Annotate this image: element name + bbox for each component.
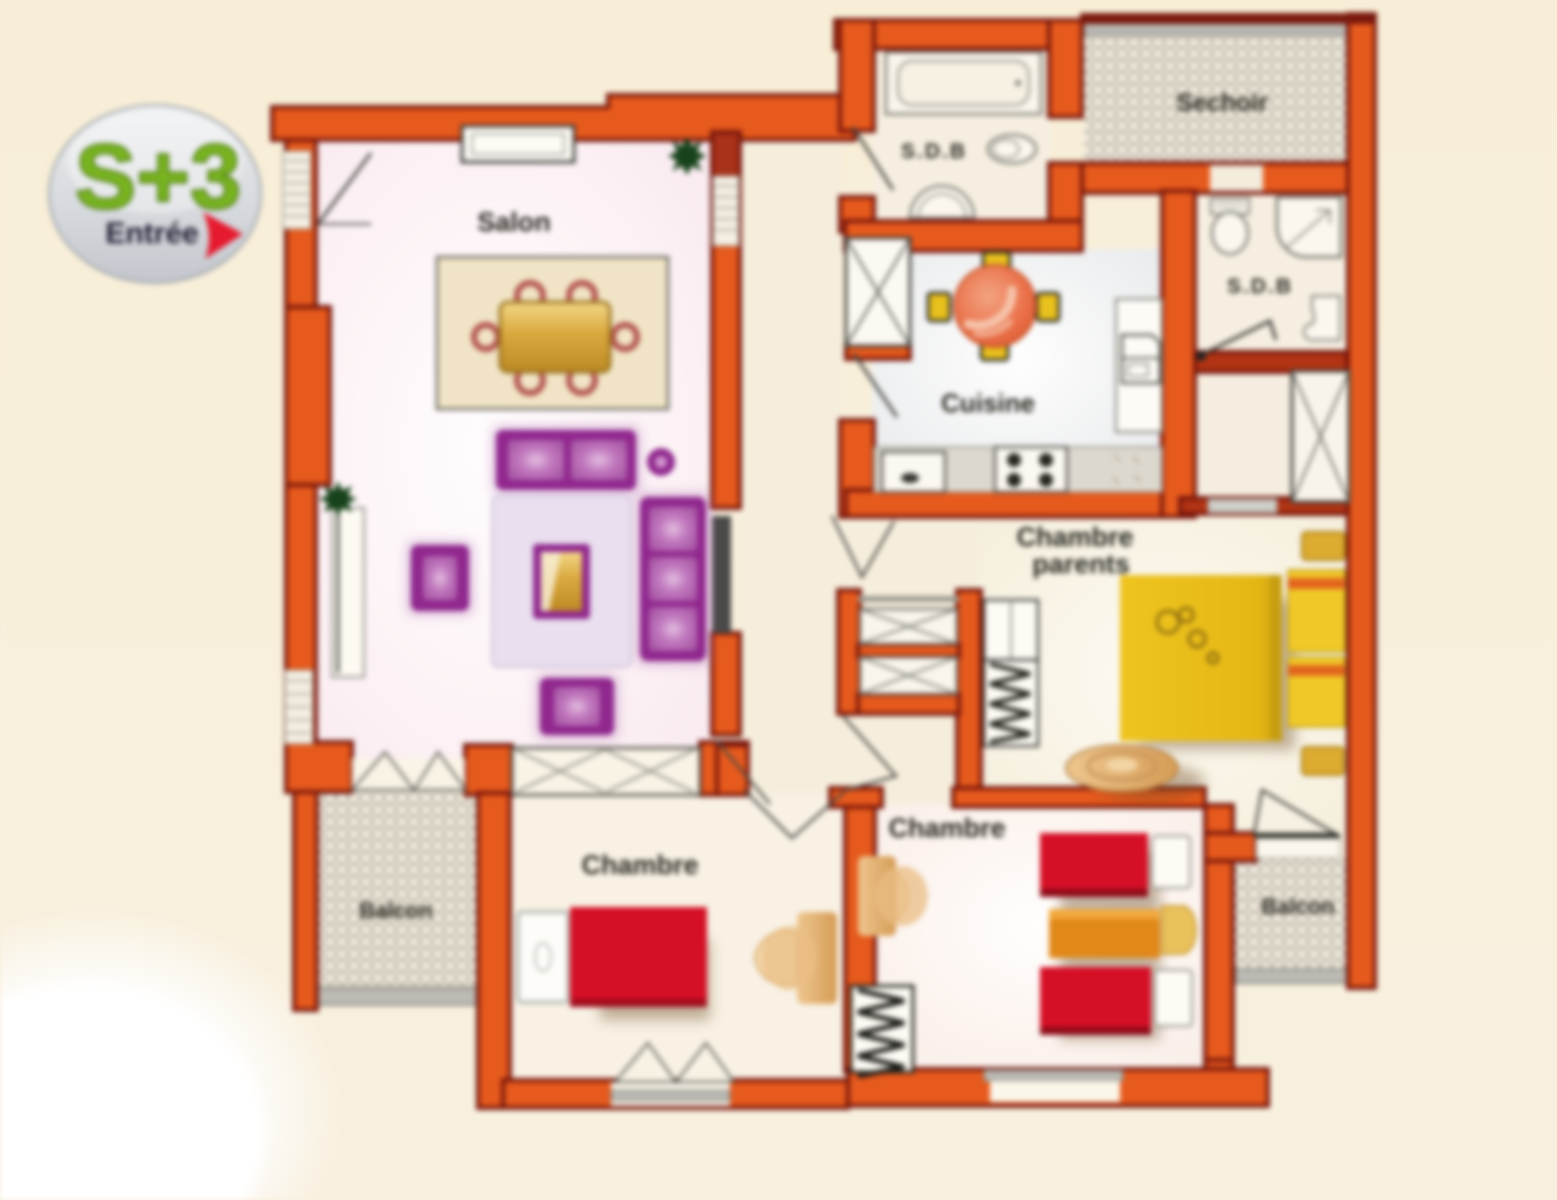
svg-text:Chambre: Chambre bbox=[888, 813, 1005, 843]
svg-text:Entrée: Entrée bbox=[105, 217, 198, 250]
svg-text:Balcon: Balcon bbox=[1261, 894, 1334, 919]
svg-text:Chambre: Chambre bbox=[581, 850, 698, 880]
svg-text:Balcon: Balcon bbox=[359, 898, 432, 923]
svg-text:Sechoir: Sechoir bbox=[1176, 89, 1268, 117]
svg-text:parents: parents bbox=[1032, 549, 1130, 579]
svg-text:Salon: Salon bbox=[477, 207, 551, 237]
svg-text:S+3: S+3 bbox=[75, 126, 241, 228]
svg-text:Chambre: Chambre bbox=[1016, 522, 1133, 552]
svg-text:S.D.B: S.D.B bbox=[901, 140, 967, 163]
svg-text:Cuisine: Cuisine bbox=[941, 388, 1035, 418]
svg-text:S.D.B: S.D.B bbox=[1227, 275, 1293, 298]
